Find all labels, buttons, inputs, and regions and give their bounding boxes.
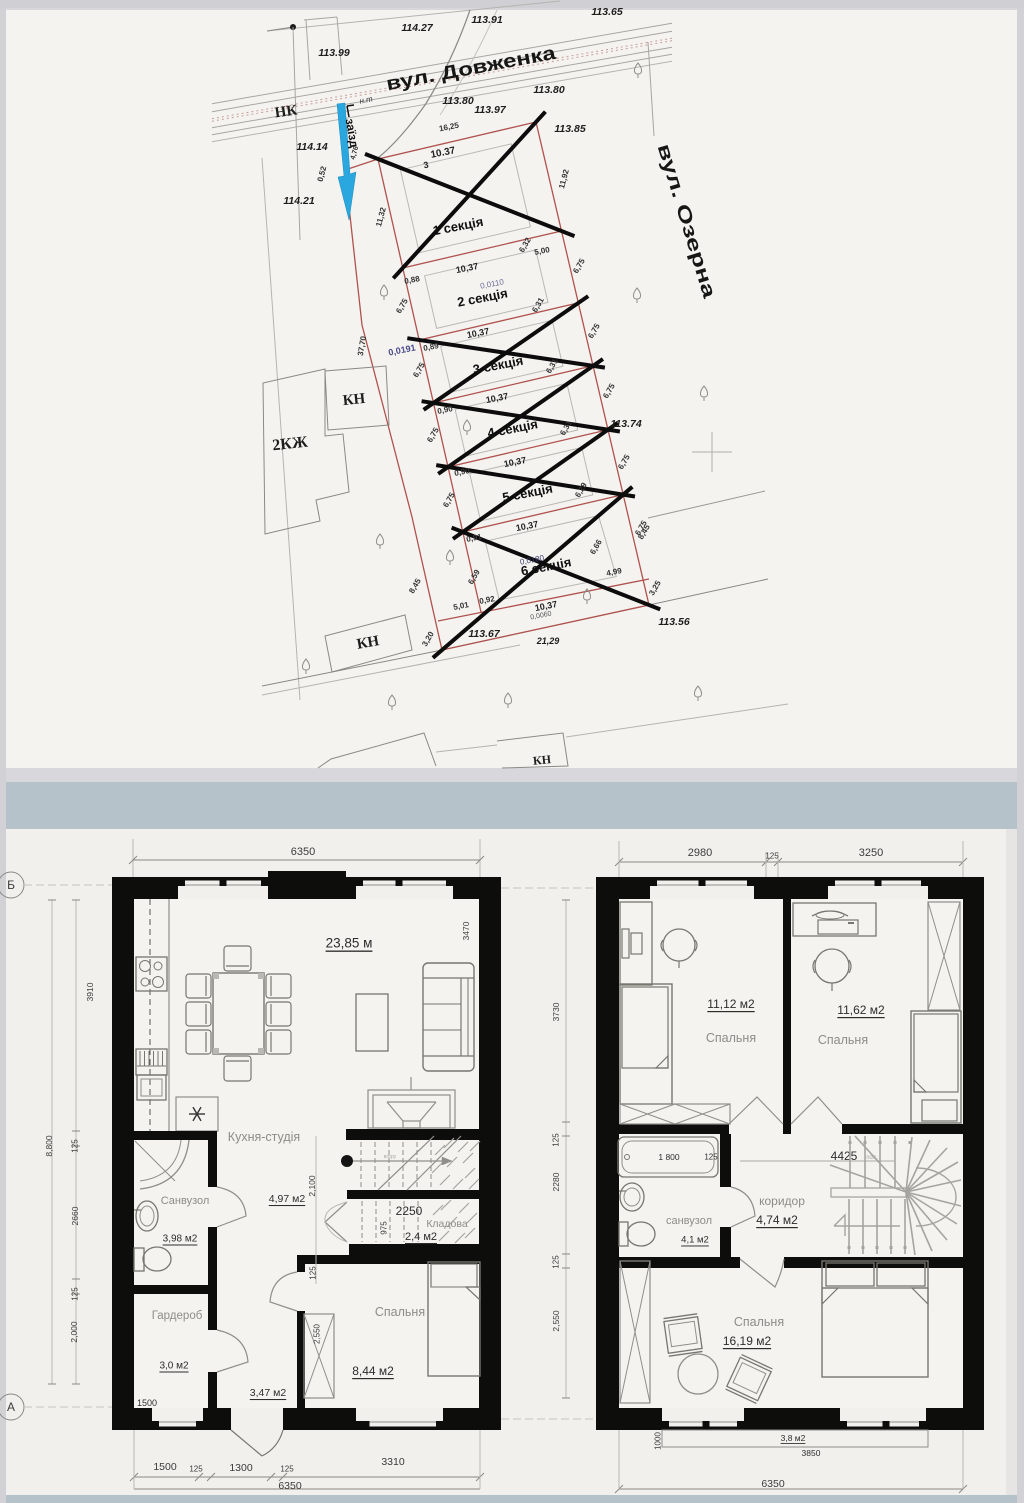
svg-text:113.80: 113.80 [442,95,473,107]
svg-text:3470: 3470 [461,921,471,940]
svg-text:3850: 3850 [802,1448,821,1458]
svg-text:коридор: коридор [759,1194,805,1208]
svg-text:Санвузол: Санвузол [161,1195,210,1207]
svg-text:вгору: вгору [384,1154,397,1160]
svg-text:113.99: 113.99 [318,47,349,59]
svg-text:1300: 1300 [229,1462,253,1474]
svg-text:6350: 6350 [761,1478,785,1490]
svg-text:975: 975 [380,1221,389,1235]
svg-text:125: 125 [704,1153,718,1162]
svg-text:Спальня: Спальня [706,1031,756,1045]
svg-text:6350: 6350 [291,846,315,858]
svg-text:8,44 м2: 8,44 м2 [352,1364,394,1378]
svg-text:2,550: 2,550 [551,1310,561,1332]
svg-text:Спальня: Спальня [375,1305,425,1319]
svg-text:2,4 м2: 2,4 м2 [405,1231,437,1243]
svg-text:114.14: 114.14 [296,141,327,153]
svg-text:113.85: 113.85 [554,123,585,135]
svg-text:3,8 м2: 3,8 м2 [781,1433,806,1443]
svg-text:113.91: 113.91 [471,14,502,26]
svg-text:1500: 1500 [137,1398,157,1408]
svg-text:1 800: 1 800 [658,1152,680,1162]
svg-text:3910: 3910 [85,982,95,1001]
svg-text:113.97: 113.97 [474,104,506,116]
svg-text:113.67: 113.67 [468,628,500,640]
svg-text:А: А [7,1400,15,1414]
svg-text:Спальня: Спальня [734,1315,784,1329]
svg-text:2,100: 2,100 [307,1175,317,1197]
svg-text:Кухня-студія: Кухня-студія [228,1130,300,1144]
svg-text:НК: НК [274,102,299,121]
svg-text:2,550: 2,550 [313,1323,322,1344]
svg-text:2280: 2280 [551,1172,561,1191]
svg-text:4,1 м2: 4,1 м2 [681,1235,709,1246]
svg-text:4425: 4425 [831,1149,858,1163]
svg-text:113.80: 113.80 [533,84,564,96]
svg-text:2980: 2980 [688,847,712,859]
svg-text:125: 125 [189,1465,203,1474]
svg-text:4,74 м2: 4,74 м2 [756,1213,798,1227]
svg-text:23,85 м: 23,85 м [326,936,373,951]
svg-text:3,47 м2: 3,47 м2 [250,1387,287,1399]
svg-text:114.27: 114.27 [401,22,433,34]
svg-text:16,19 м2: 16,19 м2 [723,1334,772,1348]
svg-text:113.65: 113.65 [591,6,622,18]
svg-text:113.56: 113.56 [658,616,689,628]
svg-text:125: 125 [280,1465,294,1474]
svg-text:Спальня: Спальня [818,1033,868,1047]
svg-text:3,98 м2: 3,98 м2 [163,1234,198,1245]
svg-text:1000: 1000 [654,1432,663,1450]
svg-text:Гардероб: Гардероб [152,1310,203,1322]
svg-text:125: 125 [71,1287,80,1301]
svg-text:3,0 м2: 3,0 м2 [159,1361,189,1372]
svg-text:Кладова: Кладова [426,1218,468,1230]
svg-text:125: 125 [552,1255,561,1269]
svg-text:125: 125 [71,1139,80,1153]
svg-text:4,97 м2: 4,97 м2 [269,1193,306,1205]
svg-text:2,000: 2,000 [69,1321,79,1343]
svg-text:3310: 3310 [381,1456,405,1468]
svg-text:114.21: 114.21 [283,195,314,207]
svg-text:2250: 2250 [396,1204,423,1218]
svg-text:2660: 2660 [70,1206,80,1225]
svg-text:КН: КН [342,391,366,409]
svg-text:125: 125 [309,1266,318,1280]
svg-text:113.74: 113.74 [610,418,641,430]
svg-text:3730: 3730 [551,1002,561,1021]
svg-text:8,800: 8,800 [44,1135,54,1157]
svg-text:1500: 1500 [153,1461,177,1473]
svg-text:125: 125 [765,852,779,861]
svg-text:6350: 6350 [278,1480,302,1492]
svg-text:3250: 3250 [859,847,883,859]
svg-text:21,29: 21,29 [536,636,560,646]
svg-text:125: 125 [552,1133,561,1147]
svg-text:11,62 м2: 11,62 м2 [837,1003,885,1017]
svg-text:санвузол: санвузол [666,1215,712,1227]
svg-text:11,12 м2: 11,12 м2 [707,997,755,1011]
svg-text:Б: Б [7,878,15,892]
svg-text:КН: КН [532,752,552,768]
